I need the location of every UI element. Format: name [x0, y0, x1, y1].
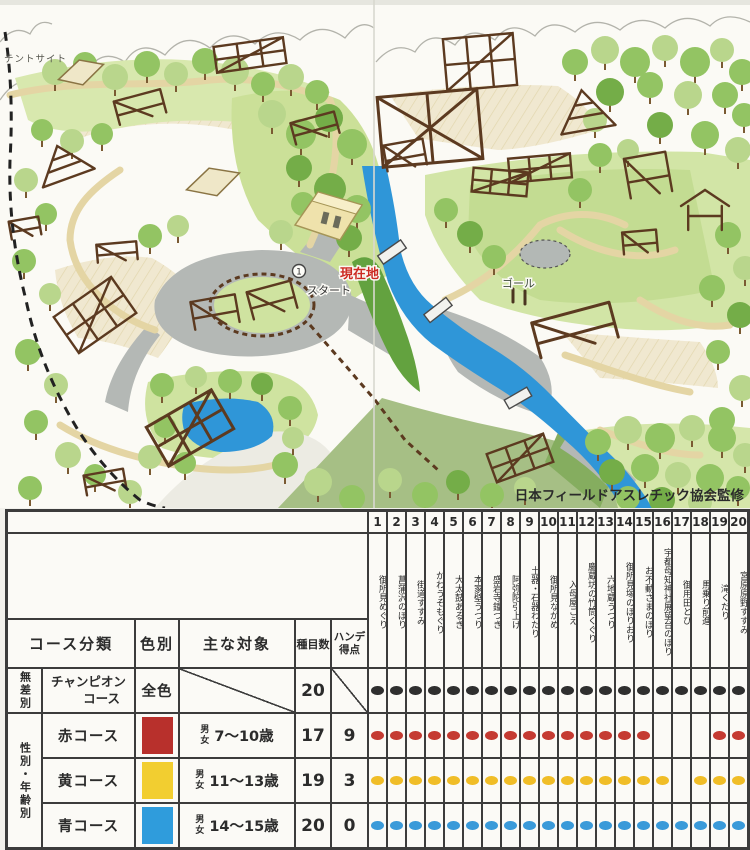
color-swatch-cell	[135, 758, 179, 803]
station-name-cell: 盛岩寺鐘つき	[482, 533, 501, 668]
course-dot	[656, 821, 669, 831]
dot-cell	[425, 713, 444, 758]
station-name-cell: 本家壁うつり	[463, 533, 482, 668]
station-number-cell: 19	[710, 511, 729, 533]
station-name-cell: 菖蒲沢のぼり	[387, 533, 406, 668]
course-dot	[485, 821, 498, 831]
course-dot	[656, 686, 669, 696]
color-swatch-cell	[135, 803, 179, 848]
dot-cell	[387, 758, 406, 803]
station-name-cell: 御所見めぐり	[368, 533, 387, 668]
age-label: 11〜13歳	[209, 770, 278, 791]
course-dot	[618, 821, 631, 831]
dot-cell	[520, 758, 539, 803]
station-name-cell: 御所見塚のぼりおり	[615, 533, 634, 668]
tree	[647, 112, 673, 138]
group-label-champion: 無差別	[7, 668, 42, 713]
course-dot	[618, 731, 631, 741]
course-dot	[637, 821, 650, 831]
events-cell: 20	[295, 803, 331, 848]
course-dot	[390, 686, 403, 696]
dot-cell	[463, 758, 482, 803]
dot-cell	[653, 668, 672, 713]
dot-cell	[653, 713, 672, 758]
course-dot	[523, 686, 536, 696]
color-swatch	[142, 762, 173, 799]
tree	[679, 415, 705, 441]
dot-cell	[406, 668, 425, 713]
dot-cell	[691, 758, 710, 803]
station-number-cell: 20	[729, 511, 748, 533]
dot-cell	[520, 713, 539, 758]
dot-cell	[482, 668, 501, 713]
tree	[138, 224, 162, 248]
course-dot	[447, 776, 460, 786]
course-dot	[390, 731, 403, 741]
tree	[674, 81, 702, 109]
dot-cell	[368, 713, 387, 758]
tree	[278, 396, 302, 420]
dot-cell	[710, 668, 729, 713]
course-dot	[371, 686, 384, 696]
course-dot	[485, 686, 498, 696]
dot-cell	[558, 668, 577, 713]
course-dot	[732, 731, 745, 741]
tree	[102, 64, 128, 90]
dot-cell	[672, 758, 691, 803]
course-dot	[466, 821, 479, 831]
course-dot	[371, 776, 384, 786]
tree	[482, 245, 506, 269]
course-dot	[409, 686, 422, 696]
tree	[55, 442, 81, 468]
dot-cell	[406, 803, 425, 848]
dot-cell	[406, 713, 425, 758]
station-name-cell: 滝くだり	[710, 533, 729, 668]
course-dot	[675, 821, 688, 831]
station-name-cell: 入母屋ごえ	[558, 533, 577, 668]
dot-cell	[368, 668, 387, 713]
tree	[562, 49, 588, 75]
course-dot	[485, 731, 498, 741]
handicap-cell: 0	[331, 803, 368, 848]
course-dot	[542, 821, 555, 831]
station-name-cell: お不動さまのぼり	[634, 533, 653, 668]
course-dot	[542, 731, 555, 741]
course-dot	[694, 776, 707, 786]
station-name-cell: 大太鼓あるき	[444, 533, 463, 668]
course-name-cell: 赤コース	[42, 713, 135, 758]
course-dot	[732, 776, 745, 786]
course-dot	[428, 686, 441, 696]
goal-pond	[520, 240, 570, 268]
dot-cell	[691, 713, 710, 758]
tree	[286, 155, 312, 181]
tree	[412, 482, 438, 508]
age-label: 14〜15歳	[209, 815, 278, 836]
tree	[712, 82, 738, 108]
course-dot	[675, 686, 688, 696]
tree	[599, 459, 625, 485]
dot-cell	[729, 668, 748, 713]
course-dot	[390, 821, 403, 831]
tree	[596, 78, 624, 106]
course-dot	[409, 821, 422, 831]
dot-cell	[482, 713, 501, 758]
dot-cell	[482, 803, 501, 848]
station-number-cell: 6	[463, 511, 482, 533]
course-dot	[504, 776, 517, 786]
course-dot	[580, 821, 593, 831]
tree	[680, 47, 710, 77]
dot-cell	[634, 668, 653, 713]
tree	[568, 178, 592, 202]
target-cell	[179, 668, 295, 713]
course-dot	[618, 686, 631, 696]
tree	[637, 72, 663, 98]
dot-cell	[634, 758, 653, 803]
tree	[39, 283, 61, 305]
dot-cell	[596, 713, 615, 758]
dot-cell	[691, 668, 710, 713]
events-cell: 20	[295, 668, 331, 713]
dot-cell	[596, 758, 615, 803]
course-dot	[371, 731, 384, 741]
age-label: 7〜10歳	[214, 725, 273, 746]
station-number-cell: 7	[482, 511, 501, 533]
tree	[585, 429, 611, 455]
course-dot	[523, 776, 536, 786]
station-name-cell: 宇都母知神社展望台のぼり	[653, 533, 672, 668]
dot-cell	[558, 803, 577, 848]
course-dot	[599, 776, 612, 786]
dot-cell	[444, 713, 463, 758]
tree	[614, 416, 642, 444]
course-name-cell: 黄コース	[42, 758, 135, 803]
pamphlet-scan: 1 テントサイト 現在地 スタート ゴール 日本フィールドアスレチック協会監修 …	[0, 0, 750, 850]
target-cell: 男女11〜13歳	[179, 758, 295, 803]
dot-cell	[368, 758, 387, 803]
header-target: 主な対象	[179, 619, 295, 668]
station-number-cell: 2	[387, 511, 406, 533]
station-name-cell: 阿弥陀引上げ	[501, 533, 520, 668]
dot-cell	[501, 668, 520, 713]
handicap-cell: 9	[331, 713, 368, 758]
course-dot	[447, 821, 460, 831]
course-dot	[523, 821, 536, 831]
tree	[457, 221, 483, 247]
course-dot	[713, 821, 726, 831]
dot-cell	[710, 713, 729, 758]
dot-cell	[501, 803, 520, 848]
course-dot	[599, 686, 612, 696]
tree	[15, 339, 41, 365]
course-dot	[694, 686, 707, 696]
tree	[588, 143, 612, 167]
tent-site-label: テントサイト	[4, 54, 67, 65]
dot-cell	[729, 758, 748, 803]
tree	[725, 137, 750, 163]
station-number-cell: 17	[672, 511, 691, 533]
dot-cell	[539, 803, 558, 848]
dot-cell	[482, 758, 501, 803]
target-cell: 男女7〜10歳	[179, 713, 295, 758]
tree	[691, 121, 719, 149]
left-top-empty-cell	[7, 511, 368, 533]
header-events: 種目数	[295, 619, 331, 668]
station-number-cell: 4	[425, 511, 444, 533]
dot-cell	[615, 668, 634, 713]
handicap-cell	[331, 668, 368, 713]
course-dot	[466, 686, 479, 696]
color-swatch	[142, 807, 173, 844]
color-swatch	[142, 717, 173, 754]
station-number-cell: 12	[577, 511, 596, 533]
dot-cell	[691, 803, 710, 848]
tree	[652, 35, 678, 61]
course-dot	[637, 686, 650, 696]
start-number-text: 1	[296, 268, 302, 278]
station-number-cell: 14	[615, 511, 634, 533]
tree	[185, 366, 207, 388]
left-upper-empty-cell	[7, 533, 368, 619]
dot-cell	[368, 803, 387, 848]
course-name-cell: チャンピオンコース	[42, 668, 135, 713]
dot-cell	[577, 668, 596, 713]
station-name-cell: 宮原原野すすみ	[729, 533, 748, 668]
dot-cell	[444, 803, 463, 848]
tree	[446, 470, 470, 494]
course-dot	[504, 731, 517, 741]
course-dot	[542, 776, 555, 786]
dot-cell	[596, 803, 615, 848]
tree	[272, 452, 298, 478]
station-number-cell: 11	[558, 511, 577, 533]
target-cell: 男女14〜15歳	[179, 803, 295, 848]
tree	[218, 369, 242, 393]
dot-cell	[501, 758, 520, 803]
course-dot	[599, 731, 612, 741]
station-name-cell: 御所見ながめ	[539, 533, 558, 668]
dot-cell	[577, 713, 596, 758]
station-number-cell: 18	[691, 511, 710, 533]
color-cell: 全色	[135, 668, 179, 713]
tree	[710, 38, 734, 62]
dot-cell	[463, 713, 482, 758]
dot-cell	[729, 713, 748, 758]
dot-cell	[387, 713, 406, 758]
course-dot	[447, 731, 460, 741]
course-dot	[637, 731, 650, 741]
dot-cell	[653, 758, 672, 803]
tree	[91, 123, 113, 145]
park-map: 1 テントサイト 現在地 スタート ゴール 日本フィールドアスレチック協会監修	[0, 0, 750, 508]
course-dot	[428, 776, 441, 786]
tree	[278, 64, 304, 90]
course-dot	[485, 776, 498, 786]
course-dot	[466, 731, 479, 741]
header-course-class: コース分類	[7, 619, 135, 668]
dot-cell	[558, 758, 577, 803]
tree	[269, 220, 293, 244]
dot-cell	[672, 668, 691, 713]
dot-cell	[387, 668, 406, 713]
station-number-cell: 15	[634, 511, 653, 533]
tree	[665, 462, 691, 488]
station-name-cell: 慶蔵坊の竹筒くぐり	[577, 533, 596, 668]
course-dot	[580, 776, 593, 786]
course-dot	[599, 821, 612, 831]
tree	[699, 275, 725, 301]
tree	[282, 427, 304, 449]
tree	[251, 72, 275, 96]
station-number-cell: 10	[539, 511, 558, 533]
dot-cell	[558, 713, 577, 758]
tree	[706, 340, 730, 364]
course-dot	[580, 686, 593, 696]
station-name-cell: かわうそもぐり	[425, 533, 444, 668]
dot-cell	[729, 803, 748, 848]
course-dot	[561, 686, 574, 696]
dot-cell	[615, 758, 634, 803]
gender-label: 男女	[195, 815, 204, 836]
tree	[631, 454, 659, 482]
course-dot	[713, 686, 726, 696]
tree	[305, 80, 329, 104]
course-dot	[561, 731, 574, 741]
station-number-cell: 9	[520, 511, 539, 533]
tree	[434, 198, 458, 222]
course-dot	[428, 821, 441, 831]
course-dot	[504, 821, 517, 831]
header-handicap: ハンデ得点	[331, 619, 368, 668]
dot-cell	[425, 668, 444, 713]
course-dot	[618, 776, 631, 786]
station-number-cell: 16	[653, 511, 672, 533]
course-dot	[637, 776, 650, 786]
tree	[164, 62, 188, 86]
dot-cell	[596, 668, 615, 713]
dot-cell	[425, 758, 444, 803]
course-dot	[447, 686, 460, 696]
course-dot	[694, 821, 707, 831]
dot-cell	[577, 758, 596, 803]
tree	[134, 51, 160, 77]
course-dot	[466, 776, 479, 786]
course-dot	[656, 776, 669, 786]
course-dot	[561, 821, 574, 831]
tree	[258, 100, 286, 128]
dot-cell	[653, 803, 672, 848]
tree	[14, 168, 38, 192]
course-dot	[732, 686, 745, 696]
tree	[18, 476, 42, 500]
dot-cell	[710, 758, 729, 803]
course-name-cell: 青コース	[42, 803, 135, 848]
dot-cell	[634, 713, 653, 758]
course-dot	[409, 776, 422, 786]
course-table: コース分類色別主な対象種目数ハンデ得点1御所見めぐり2菖蒲沢のぼり3街道すすみ4…	[5, 509, 750, 850]
current-location-label: 現在地	[340, 266, 379, 282]
tree	[304, 468, 332, 496]
dot-cell	[444, 668, 463, 713]
tree	[715, 222, 741, 248]
tree	[24, 410, 48, 434]
tree	[645, 423, 675, 453]
dot-cell	[710, 803, 729, 848]
station-number-cell: 1	[368, 511, 387, 533]
dot-cell	[634, 803, 653, 848]
station-number-cell: 13	[596, 511, 615, 533]
start-label: スタート	[307, 284, 351, 297]
events-cell: 17	[295, 713, 331, 758]
gender-label: 男女	[200, 725, 209, 746]
tree	[337, 129, 367, 159]
dot-cell	[539, 713, 558, 758]
tree	[167, 215, 189, 237]
station-number-cell: 8	[501, 511, 520, 533]
dot-cell	[463, 668, 482, 713]
tree	[44, 373, 68, 397]
station-number-cell: 5	[444, 511, 463, 533]
tree	[251, 373, 273, 395]
dot-cell	[425, 803, 444, 848]
dot-cell	[387, 803, 406, 848]
station-name-cell: 馬乗り前進	[691, 533, 710, 668]
course-dot	[561, 776, 574, 786]
course-dot	[580, 731, 593, 741]
course-dot	[713, 731, 726, 741]
header-color: 色別	[135, 619, 179, 668]
course-dot	[732, 821, 745, 831]
dot-cell	[672, 803, 691, 848]
tree	[480, 483, 504, 507]
tree	[31, 119, 53, 141]
dot-cell	[577, 803, 596, 848]
course-dot	[504, 686, 517, 696]
dot-cell	[520, 803, 539, 848]
course-dot	[371, 821, 384, 831]
dot-cell	[520, 668, 539, 713]
course-dot	[409, 731, 422, 741]
station-name-cell: 御用田とび	[672, 533, 691, 668]
dot-cell	[672, 713, 691, 758]
course-dot	[390, 776, 403, 786]
dot-cell	[539, 668, 558, 713]
dot-cell	[501, 713, 520, 758]
station-name-cell: 土器・石器わたり	[520, 533, 539, 668]
tree	[378, 468, 402, 492]
goal-label: ゴール	[502, 276, 535, 290]
dot-cell	[615, 713, 634, 758]
course-dot	[542, 686, 555, 696]
course-dot	[428, 731, 441, 741]
station-name-cell: 六地蔵うつり	[596, 533, 615, 668]
tree	[150, 373, 174, 397]
dot-cell	[444, 758, 463, 803]
station-number-cell: 3	[406, 511, 425, 533]
events-cell: 19	[295, 758, 331, 803]
dot-cell	[406, 758, 425, 803]
color-swatch-cell	[135, 713, 179, 758]
association-credit: 日本フィールドアスレチック協会監修	[515, 487, 745, 504]
dot-cell	[539, 758, 558, 803]
start-number-badge: 1	[293, 265, 306, 278]
tree	[591, 36, 619, 64]
course-dot	[713, 776, 726, 786]
station-name-cell: 街道すすみ	[406, 533, 425, 668]
course-dot	[523, 731, 536, 741]
